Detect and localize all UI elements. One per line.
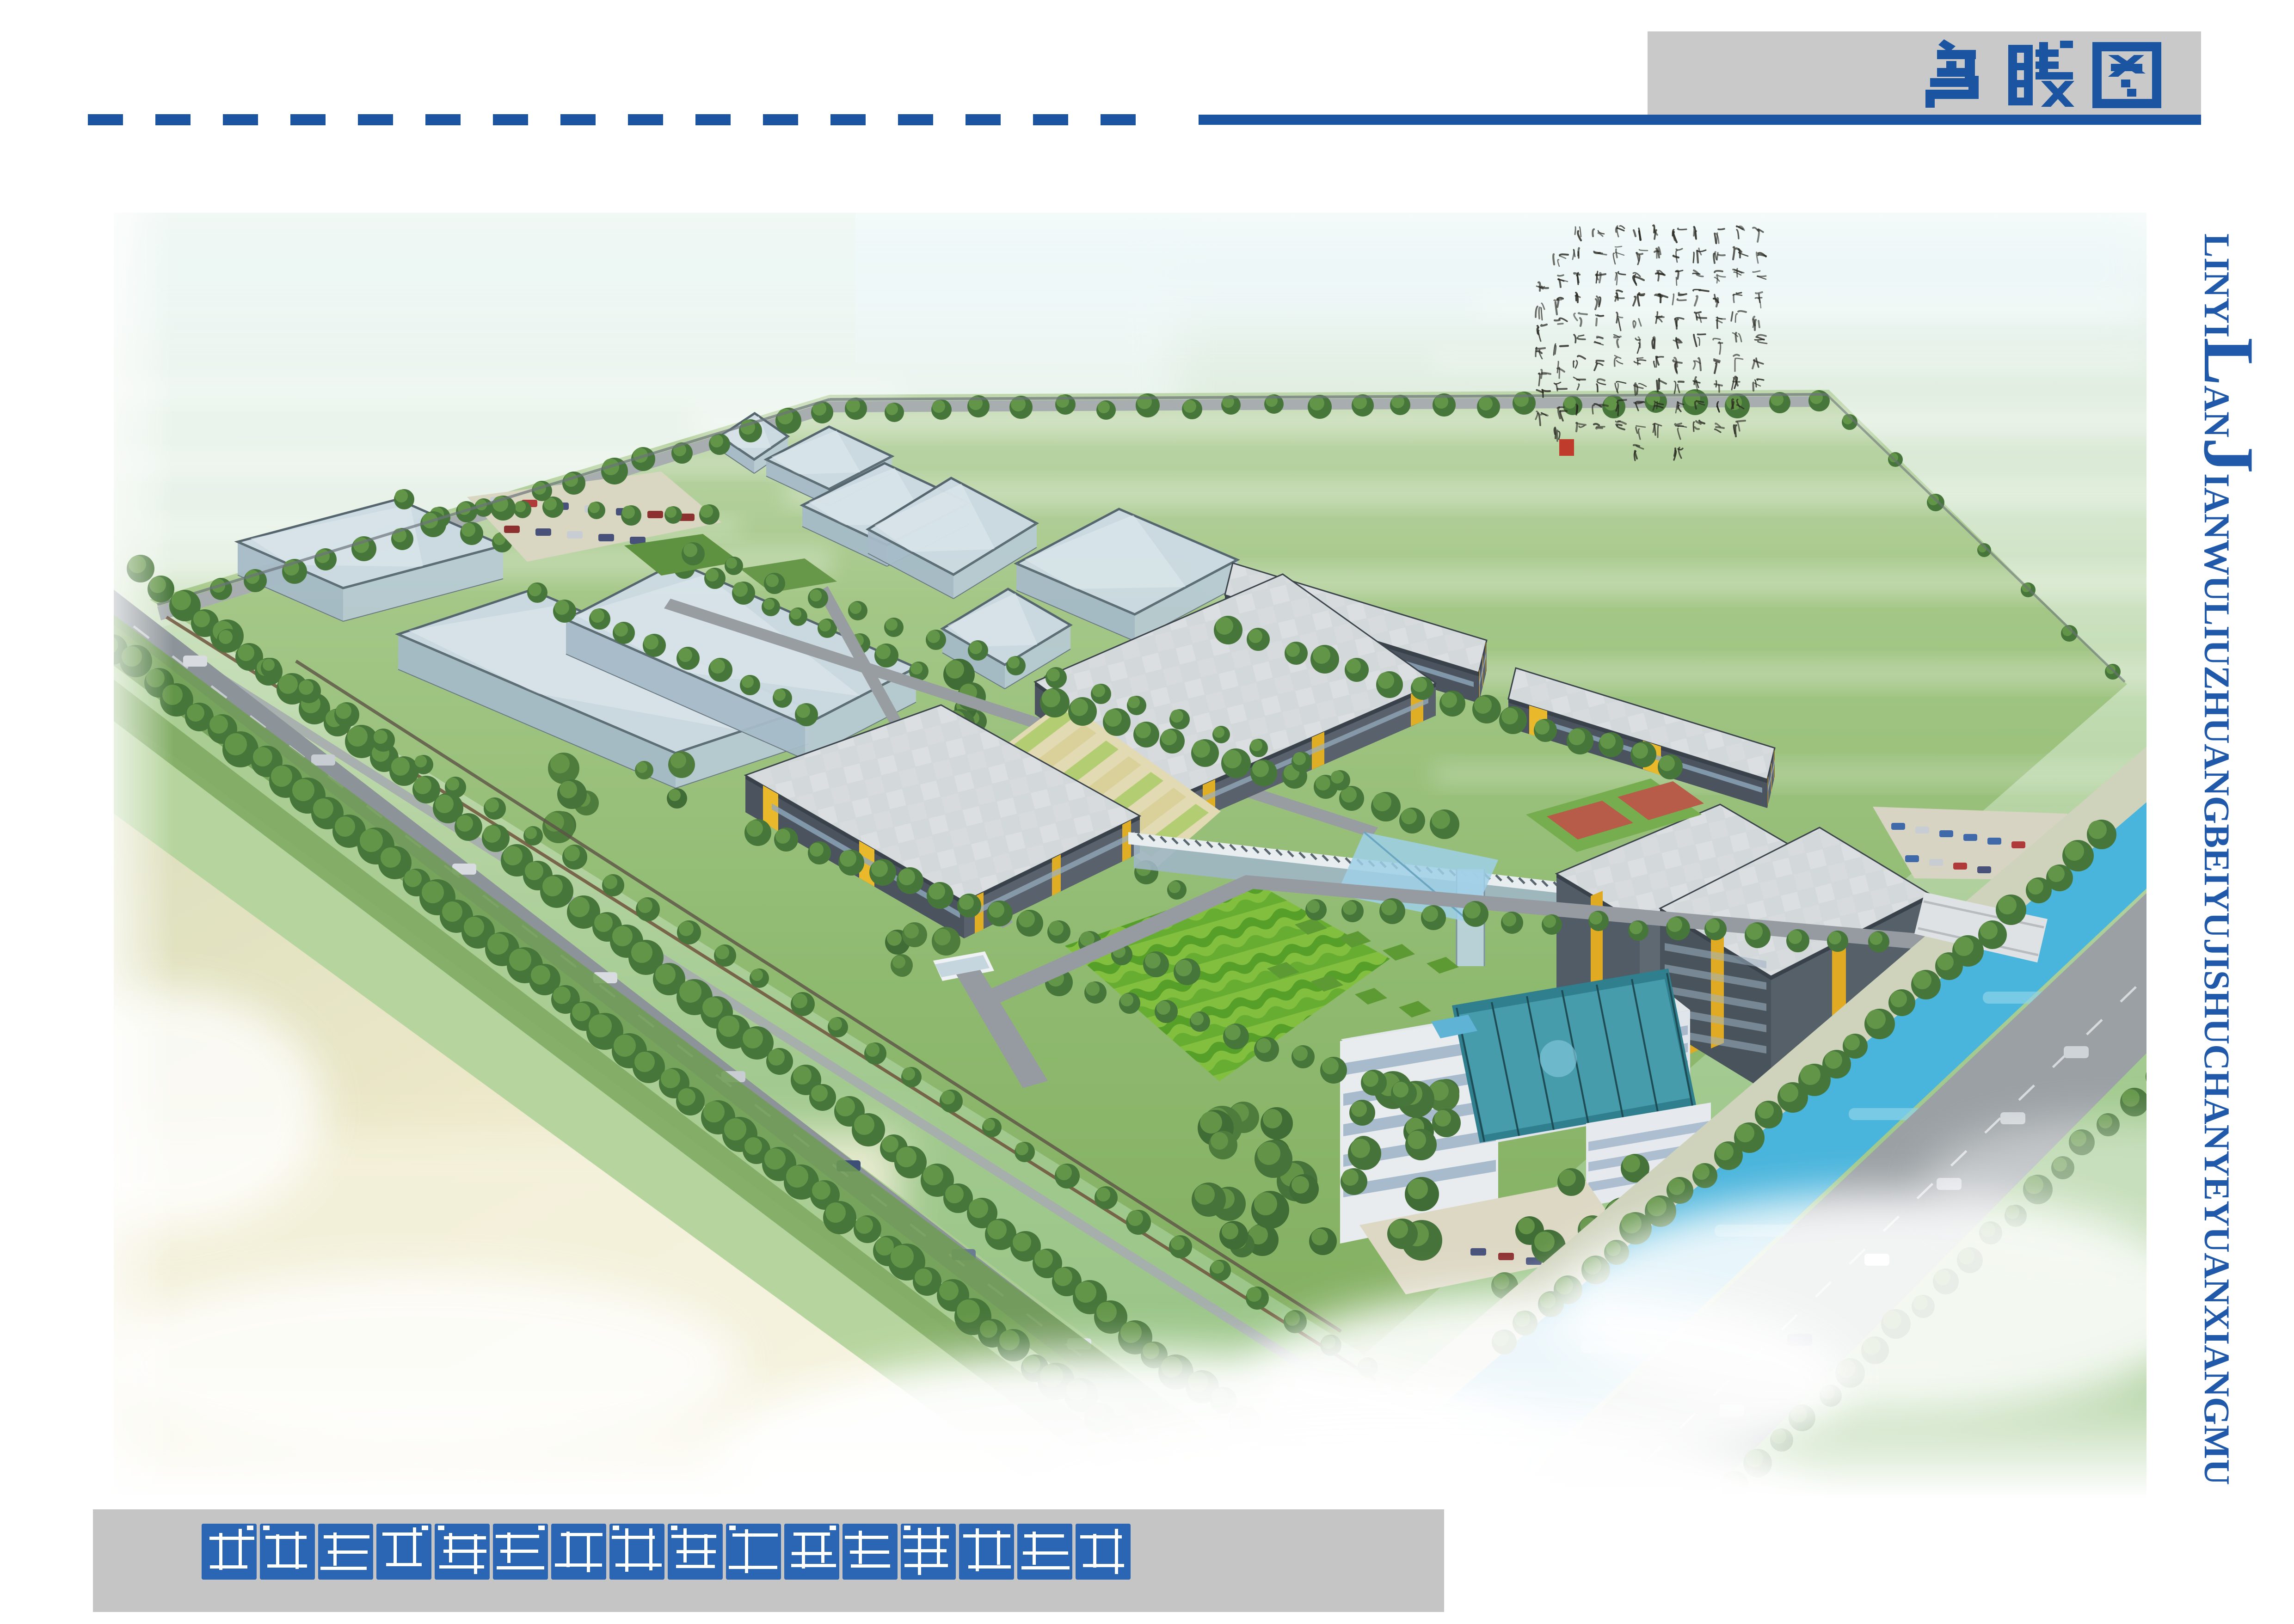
- svg-text:LINYILANJIANWULIUZHUANGBEIYUJI: LINYILANJIANWULIUZHUANGBEIYUJISHUCHANYEY…: [2189, 233, 2269, 1485]
